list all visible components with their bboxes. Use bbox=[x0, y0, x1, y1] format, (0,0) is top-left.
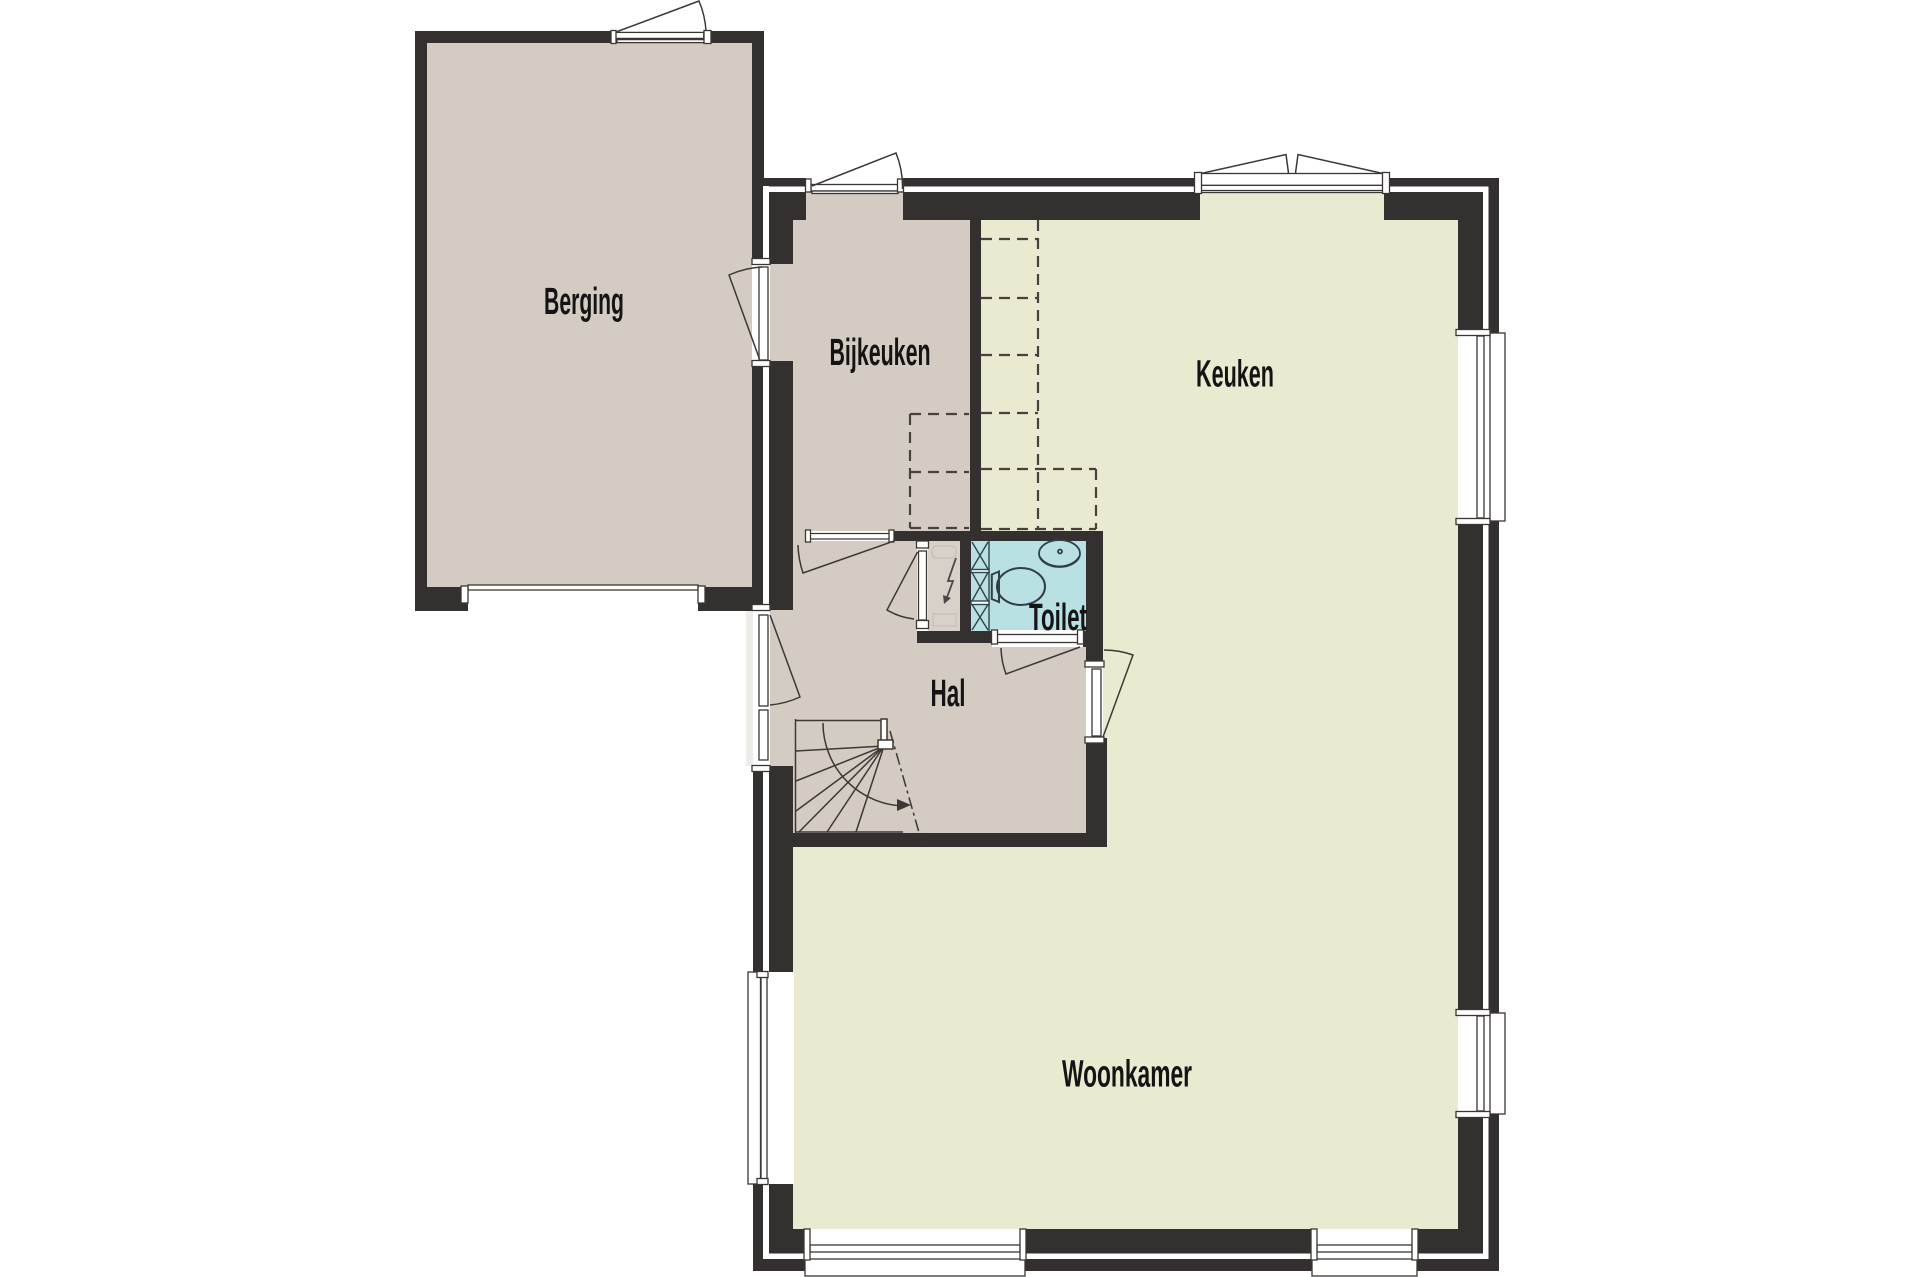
svg-text:Bijkeuken: Bijkeuken bbox=[829, 330, 930, 373]
svg-text:Berging: Berging bbox=[544, 279, 624, 322]
svg-text:Hal: Hal bbox=[930, 672, 965, 715]
svg-text:Toilet: Toilet bbox=[1029, 596, 1087, 639]
svg-text:Woonkamer: Woonkamer bbox=[1062, 1053, 1192, 1095]
svg-text:Keuken: Keuken bbox=[1196, 352, 1274, 395]
